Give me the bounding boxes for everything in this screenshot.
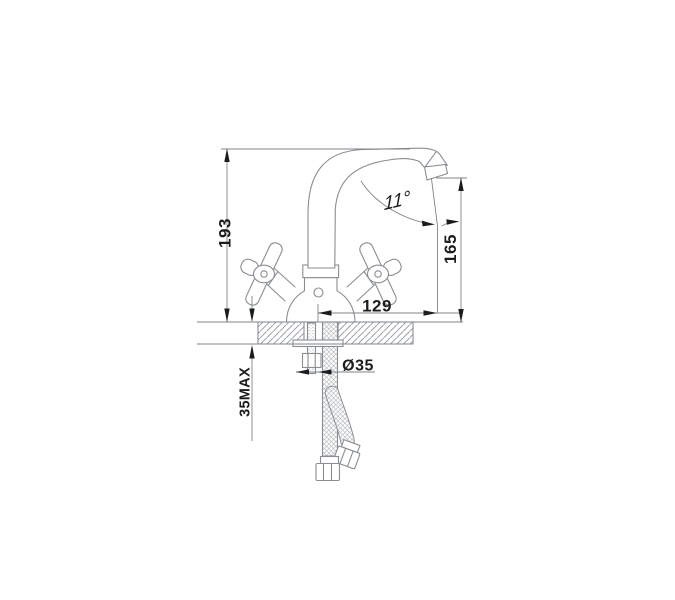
faucet-technical-drawing: 193 165 129 35MAX Ø35 11° bbox=[0, 0, 675, 600]
dim-label-total-height: 193 bbox=[216, 218, 235, 248]
arrow-outlet-height-top bbox=[458, 178, 463, 192]
arrow-angle-arc bbox=[422, 221, 435, 227]
deck-hatch-right bbox=[338, 323, 413, 344]
product-linework bbox=[239, 148, 448, 480]
arrow-total-height-top bbox=[224, 149, 229, 163]
handle-left-hub-center bbox=[261, 271, 267, 277]
handle-right-hub-center bbox=[375, 271, 381, 277]
arrow-total-height-bottom bbox=[224, 309, 229, 323]
dim-label-outlet-height: 165 bbox=[441, 234, 460, 264]
arrow-thickness-bottom bbox=[249, 345, 254, 359]
arrow-outlet-height-bottom bbox=[458, 309, 463, 323]
dim-label-thickness: 35MAX bbox=[238, 367, 254, 417]
stream-direction-line bbox=[432, 179, 438, 226]
dim-label-spout-angle: 11° bbox=[384, 187, 411, 215]
faucet-body bbox=[287, 278, 356, 322]
hose-nut-straight bbox=[316, 457, 340, 481]
mounting-nut bbox=[303, 354, 322, 368]
arrow-hole-left bbox=[296, 369, 309, 374]
dim-label-hole-diameter: Ø35 bbox=[342, 358, 374, 375]
arrow-reach-right bbox=[424, 310, 438, 315]
mounting-flange bbox=[293, 340, 343, 347]
faucet-spout bbox=[308, 148, 447, 268]
arrow-angle-tail bbox=[446, 219, 459, 225]
arrow-thickness-top bbox=[249, 309, 254, 323]
mounting-stud bbox=[308, 323, 316, 354]
dim-label-reach: 129 bbox=[362, 297, 392, 316]
faucet bbox=[239, 148, 448, 322]
